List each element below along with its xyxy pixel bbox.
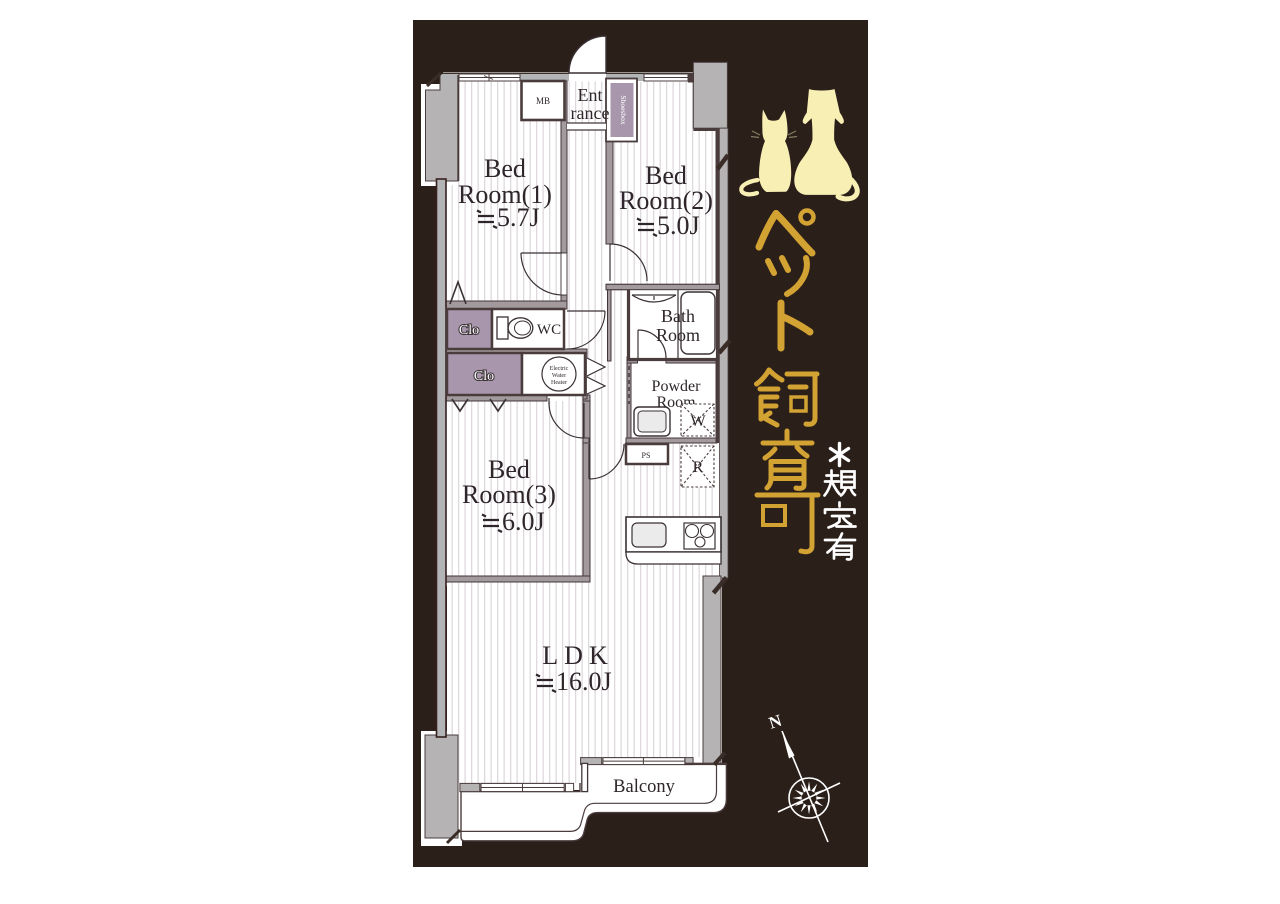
svg-text:5.0J: 5.0J bbox=[657, 211, 700, 240]
svg-text:Balcony: Balcony bbox=[613, 777, 675, 797]
svg-text:Clo: Clo bbox=[459, 323, 479, 338]
svg-text:W: W bbox=[690, 413, 706, 430]
svg-text:LDK: LDK bbox=[542, 641, 613, 670]
svg-text:WC: WC bbox=[537, 322, 561, 338]
svg-text:Clo: Clo bbox=[474, 369, 494, 384]
svg-text:Electric: Electric bbox=[550, 366, 569, 372]
svg-text:Heater: Heater bbox=[551, 380, 567, 386]
svg-text:Room(3): Room(3) bbox=[462, 480, 556, 509]
svg-text:Ent: Ent bbox=[578, 85, 603, 105]
svg-text:PS: PS bbox=[642, 451, 651, 460]
svg-text:5.7J: 5.7J bbox=[497, 203, 540, 232]
svg-text:Water: Water bbox=[552, 373, 566, 379]
svg-text:Shoesbox: Shoesbox bbox=[619, 95, 628, 124]
svg-text:Bath: Bath bbox=[661, 306, 695, 326]
svg-text:16.0J: 16.0J bbox=[556, 667, 612, 696]
svg-text:Bed: Bed bbox=[484, 154, 526, 183]
svg-text:Room: Room bbox=[656, 325, 700, 345]
svg-text:R: R bbox=[693, 459, 704, 476]
svg-text:Powder: Powder bbox=[652, 378, 702, 395]
svg-text:MB: MB bbox=[536, 96, 550, 106]
svg-text:6.0J: 6.0J bbox=[502, 507, 545, 536]
svg-text:rance: rance bbox=[571, 103, 610, 123]
